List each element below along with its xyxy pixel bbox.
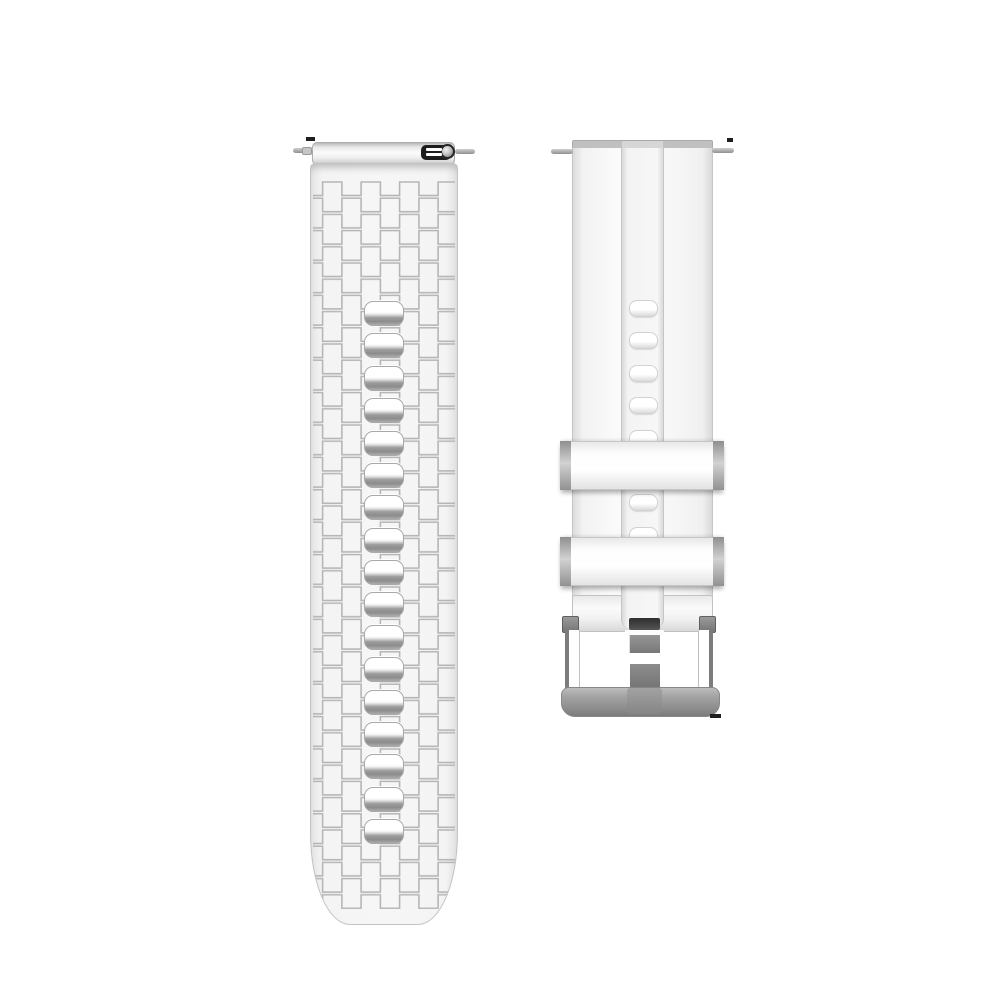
left-strap-hole — [364, 366, 404, 391]
buckle-tongue-slot — [629, 618, 660, 630]
keeper-end-cap — [560, 537, 571, 586]
photo-artifact-mark — [306, 137, 315, 141]
keeper-end-cap — [713, 441, 724, 490]
left-strap-hole — [364, 690, 404, 715]
left-strap-hole — [364, 625, 404, 650]
strap-keeper-loop — [560, 441, 724, 490]
buckle-frame-right-arm — [698, 630, 713, 688]
spring-bar-pin — [455, 149, 475, 154]
photo-artifact-mark — [727, 138, 733, 142]
left-strap-hole — [364, 528, 404, 553]
spring-bar-pin — [712, 148, 734, 153]
left-strap-hole — [364, 333, 404, 358]
keeper-end-cap — [560, 441, 571, 490]
left-strap-hole — [364, 722, 404, 747]
buckle-tongue-tip — [627, 688, 662, 714]
right-strap-hole — [629, 494, 658, 511]
right-strap-hole — [629, 397, 658, 414]
quick-release-slot — [426, 148, 442, 151]
left-strap-hole — [364, 560, 404, 585]
buckle-tongue-lower — [630, 664, 660, 687]
right-strap-hole — [629, 332, 658, 349]
photo-artifact-mark — [710, 714, 721, 718]
left-strap-hole — [364, 787, 404, 812]
left-strap-hole — [364, 398, 404, 423]
left-strap-hole — [364, 301, 404, 326]
buckle-frame-left-arm — [565, 630, 580, 688]
strap-keeper-loop — [560, 537, 724, 586]
left-strap-hole — [364, 657, 404, 682]
left-strap-hole — [364, 819, 404, 844]
left-strap-hole — [364, 592, 404, 617]
spring-bar-pin — [551, 149, 573, 154]
quick-release-knob — [440, 144, 455, 159]
left-strap-hole — [364, 463, 404, 488]
right-strap-end-bar-channel — [622, 141, 663, 148]
buckle-tongue-upper — [629, 635, 660, 653]
left-strap-body — [310, 163, 458, 925]
right-strap-hole — [629, 300, 658, 317]
left-strap-hole — [364, 431, 404, 456]
spring-bar-pin-nub — [302, 147, 312, 155]
right-strap-hole — [629, 365, 658, 382]
left-strap-hole — [364, 754, 404, 779]
left-strap-hole — [364, 495, 404, 520]
keeper-end-cap — [713, 537, 724, 586]
product-photo-canvas — [0, 0, 1000, 1000]
quick-release-slot — [426, 153, 442, 156]
